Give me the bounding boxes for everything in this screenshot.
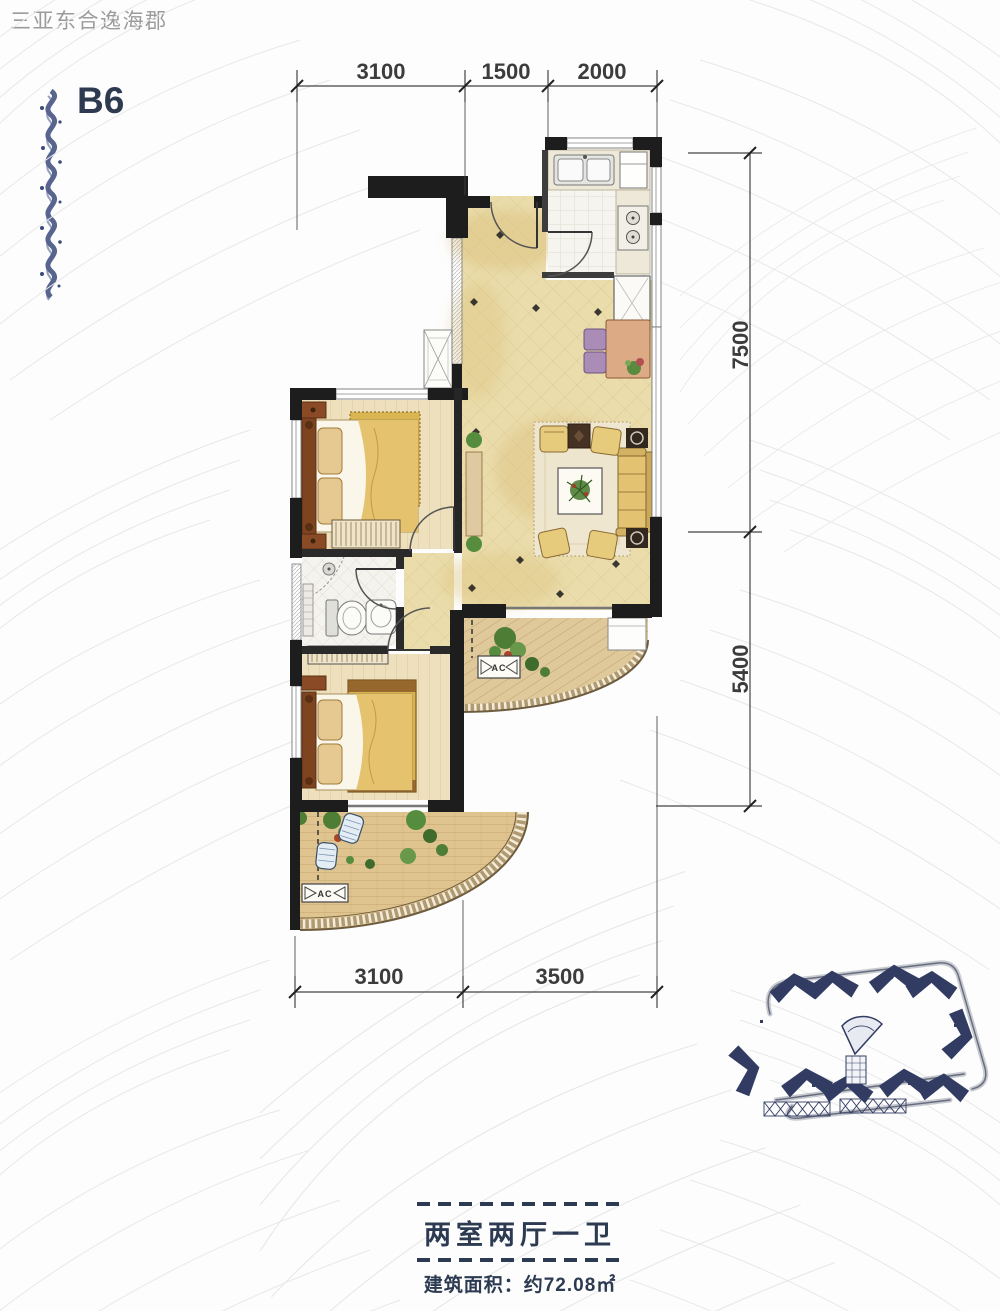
dash-divider — [417, 1258, 623, 1262]
fridge-icon — [620, 152, 647, 188]
dining-table-icon — [584, 320, 650, 378]
ac-unit-right: AC — [478, 656, 520, 678]
dim-bottom-1: 3100 — [355, 964, 404, 989]
area-text: 建筑面积：约72.08㎡ — [417, 1270, 623, 1297]
bathroom-sink-icon — [366, 600, 396, 634]
ac-unit-bottom: AC — [302, 884, 348, 902]
wardrobe-icon — [332, 520, 400, 548]
towel-shelf — [303, 584, 313, 636]
dim-bottom-2: 3500 — [536, 964, 585, 989]
layout-title: 两室两厅一卫 — [417, 1206, 623, 1258]
floor-plan: AC AC — [290, 137, 662, 930]
washing-machine-icon — [608, 618, 646, 650]
balcony-bottom: AC — [293, 810, 528, 930]
dim-top-2: 1500 — [482, 59, 531, 84]
bed-icon — [302, 418, 418, 534]
dim-top-3: 2000 — [578, 59, 627, 84]
sofa-icon — [616, 448, 654, 536]
ac-label: AC — [492, 663, 507, 673]
nightstand-icon — [300, 676, 326, 690]
ac-label: AC — [318, 889, 333, 899]
dimension-right: 7500 5400 — [656, 147, 762, 812]
unit-summary: 两室两厅一卫 建筑面积：约72.08㎡ — [417, 1202, 623, 1297]
toilet-icon — [326, 600, 367, 636]
dim-top-1: 3100 — [357, 59, 406, 84]
dim-right-2: 5400 — [728, 645, 753, 694]
dim-right-1: 7500 — [728, 321, 753, 370]
balcony-right: AC — [462, 618, 648, 712]
bed-icon — [302, 692, 412, 790]
bedroom-1 — [300, 402, 420, 549]
stove-icon — [618, 206, 648, 250]
center-table-plant-icon — [558, 468, 602, 514]
ac-platform — [424, 330, 452, 388]
kitchen-sink-icon — [554, 155, 614, 185]
coffee-table-icon — [568, 424, 590, 448]
site-plan — [727, 963, 986, 1118]
